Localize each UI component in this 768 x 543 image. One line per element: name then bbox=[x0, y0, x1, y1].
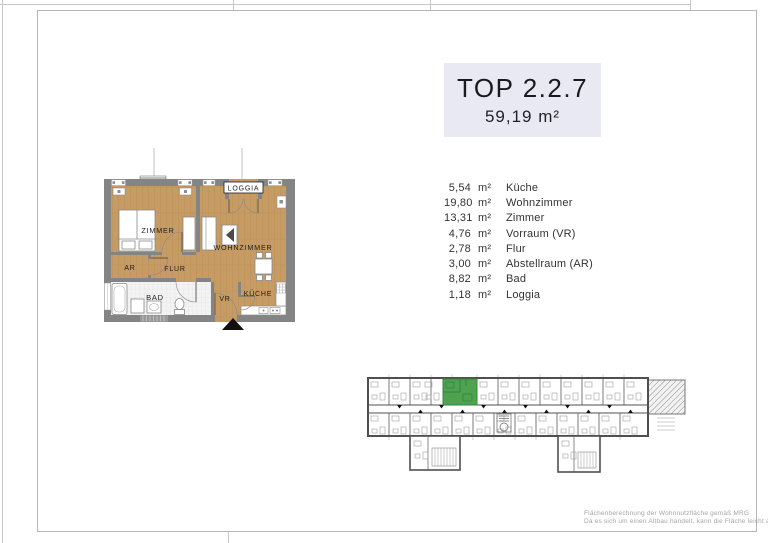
crop-mark-top bbox=[0, 4, 690, 5]
neighbour-stair bbox=[657, 418, 675, 430]
building-overview bbox=[362, 372, 690, 482]
apartment-floorplan-drawing: LOGGIA bbox=[100, 148, 300, 333]
room-name: Abstellraum (AR) bbox=[503, 258, 593, 270]
room-name: Küche bbox=[503, 182, 593, 194]
room-unit: m² bbox=[475, 212, 499, 224]
footnote-line-1: Flächenberechnung der Wohnnutzfläche gem… bbox=[584, 510, 768, 518]
room-list: 5,54m²Küche 19,80m²Wohnzimmer 13,31m²Zim… bbox=[444, 180, 593, 302]
wohnzimmer-label: WOHNZIMMER bbox=[213, 243, 272, 252]
crop-mark-bottom-tick bbox=[228, 532, 229, 543]
washing-machine bbox=[131, 299, 144, 313]
loggia-label: LOGGIA bbox=[228, 185, 260, 192]
room-area: 5,54 bbox=[444, 182, 471, 194]
bathtub bbox=[112, 284, 127, 315]
neighbour-building bbox=[648, 380, 685, 414]
room-unit: m² bbox=[475, 289, 499, 301]
room-row: 19,80m²Wohnzimmer bbox=[444, 195, 593, 210]
highlighted-unit bbox=[443, 379, 477, 405]
title-box: TOP 2.2.7 59,19 m² bbox=[444, 63, 601, 137]
crop-mark-tick-2 bbox=[430, 0, 431, 10]
room-unit: m² bbox=[475, 228, 499, 240]
apartment-floorplan: LOGGIA bbox=[100, 148, 300, 333]
room-unit: m² bbox=[475, 182, 499, 194]
footnote: Flächenberechnung der Wohnnutzfläche gem… bbox=[584, 510, 768, 526]
room-area: 8,82 bbox=[444, 273, 471, 285]
room-area: 2,78 bbox=[444, 243, 471, 255]
vr-label: VR bbox=[219, 296, 230, 303]
room-row: 1,18m²Loggia bbox=[444, 287, 593, 302]
footnote-line-2: Da es sich um einen Altbau handelt, kann… bbox=[584, 518, 768, 526]
room-area: 3,00 bbox=[444, 258, 471, 270]
room-row: 5,54m²Küche bbox=[444, 180, 593, 195]
room-name: Flur bbox=[503, 243, 593, 255]
room-unit: m² bbox=[475, 258, 499, 270]
toilet bbox=[175, 299, 185, 315]
right-wing bbox=[558, 436, 600, 472]
tv-icon bbox=[222, 225, 237, 245]
bad-label: BAD bbox=[146, 293, 164, 302]
room-unit: m² bbox=[475, 273, 499, 285]
room-row: 8,82m²Bad bbox=[444, 272, 593, 287]
window-icon bbox=[104, 283, 110, 310]
unit-total-area: 59,19 m² bbox=[485, 107, 560, 127]
kueche-label: KÜCHE bbox=[244, 290, 273, 298]
room-area: 1,18 bbox=[444, 289, 471, 301]
room-unit: m² bbox=[475, 243, 499, 255]
room-row: 4,76m²Vorraum (VR) bbox=[444, 226, 593, 241]
sink bbox=[147, 301, 161, 313]
room-area: 4,76 bbox=[444, 228, 471, 240]
room-row: 13,31m²Zimmer bbox=[444, 211, 593, 226]
room-name: Bad bbox=[503, 273, 593, 285]
room-area: 13,31 bbox=[444, 212, 471, 224]
room-row: 3,00m²Abstellraum (AR) bbox=[444, 256, 593, 271]
room-row: 2,78m²Flur bbox=[444, 241, 593, 256]
room-unit: m² bbox=[475, 197, 499, 209]
glass-block-vent bbox=[140, 315, 168, 321]
ar-label: AR bbox=[124, 265, 135, 272]
crop-mark-tick-3 bbox=[690, 0, 691, 10]
wardrobe bbox=[183, 217, 195, 250]
crop-mark-tick-1 bbox=[233, 0, 234, 10]
room-name: Wohnzimmer bbox=[503, 197, 593, 209]
left-wing bbox=[410, 436, 460, 470]
zimmer-label: ZIMMER bbox=[141, 226, 174, 235]
room-name: Zimmer bbox=[503, 212, 593, 224]
floorplan-sheet: TOP 2.2.7 59,19 m² 5,54m²Küche 19,80m²Wo… bbox=[0, 0, 768, 543]
unit-title: TOP 2.2.7 bbox=[457, 73, 588, 104]
room-name: Vorraum (VR) bbox=[503, 228, 593, 240]
room-name: Loggia bbox=[503, 289, 593, 301]
crop-mark-left bbox=[2, 0, 3, 543]
flur-label: FLUR bbox=[164, 266, 185, 273]
building-overview-drawing bbox=[362, 372, 690, 482]
room-area: 19,80 bbox=[444, 197, 471, 209]
